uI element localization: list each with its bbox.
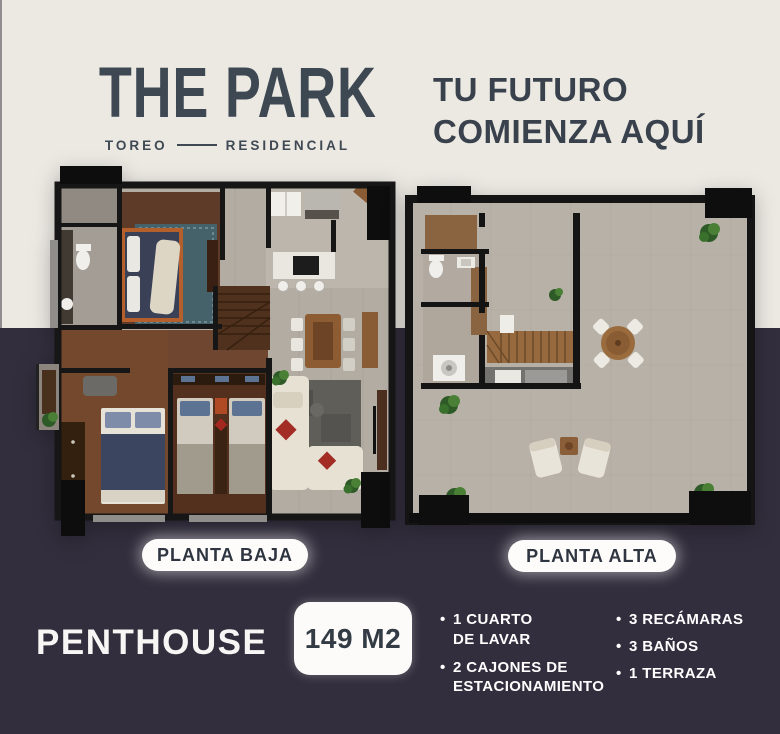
feature-item: • 2 CAJONES DE ESTACIONAMIENTO xyxy=(440,658,620,698)
brand-sub-left: TOREO xyxy=(105,138,168,153)
dresser xyxy=(207,240,218,292)
sink xyxy=(61,298,73,310)
tagline-line2: COMIENZA AQUÍ xyxy=(433,111,705,153)
tagline-line1: TU FUTURO xyxy=(433,69,705,111)
balcony xyxy=(36,364,59,430)
twin-bed-2 xyxy=(229,398,265,494)
nightstand xyxy=(215,398,227,414)
tagline: TU FUTURO COMIENZA AQUÍ xyxy=(433,69,705,153)
kitchen-island xyxy=(273,252,335,279)
twin-bed-1 xyxy=(177,398,213,494)
feature-text: 1 CUARTO DE LAVAR xyxy=(453,610,533,650)
feature-text: 2 CAJONES DE ESTACIONAMIENTO xyxy=(453,658,604,698)
bullet-icon: • xyxy=(440,610,453,650)
closet-wood xyxy=(425,215,477,253)
stairs xyxy=(218,286,270,350)
brand-subtitle: TOREORESIDENCIAL xyxy=(55,138,400,153)
feature-item: • 1 CUARTO DE LAVAR xyxy=(440,610,620,650)
washer xyxy=(433,355,465,381)
feature-text: 3 BAÑOS xyxy=(629,637,698,657)
features-column-1: • 1 CUARTO DE LAVAR • 2 CAJONES DE ESTAC… xyxy=(440,610,620,705)
floorplan-planta-alta xyxy=(405,195,755,525)
stair-landing xyxy=(500,315,514,333)
feature-text: 1 TERRAZA xyxy=(629,664,717,684)
label-planta-baja: PLANTA BAJA xyxy=(142,539,308,571)
feature-item: • 3 RECÁMARAS xyxy=(616,610,776,630)
dash-divider xyxy=(177,144,217,146)
brand-sub-right: RESIDENCIAL xyxy=(226,138,351,153)
bullet-icon: • xyxy=(616,637,629,657)
left-edge-shadow xyxy=(0,0,2,328)
feature-text: 3 RECÁMARAS xyxy=(629,610,743,630)
brand-block: THE PARK xyxy=(55,58,400,129)
bullet-icon: • xyxy=(616,664,629,684)
features-column-2: • 3 RECÁMARAS • 3 BAÑOS • 1 TERRAZA xyxy=(616,610,776,690)
dining-chairs-right xyxy=(343,318,355,371)
armchair xyxy=(83,376,117,396)
label-planta-baja-text: PLANTA BAJA xyxy=(157,545,293,566)
floorplan-planta-baja xyxy=(55,182,395,520)
toilet xyxy=(429,260,443,278)
unit-type-title: PENTHOUSE xyxy=(36,623,267,663)
utility-counter xyxy=(481,367,579,385)
closet-floor xyxy=(58,188,120,224)
feature-item: • 3 BAÑOS xyxy=(616,637,776,657)
dining-chairs-left xyxy=(291,318,303,371)
bed xyxy=(101,408,165,504)
bed xyxy=(121,228,183,322)
feature-item: • 1 TERRAZA xyxy=(616,664,776,684)
bar-stools xyxy=(278,281,325,292)
area-badge: 149 M2 xyxy=(294,602,412,675)
label-planta-alta-text: PLANTA ALTA xyxy=(526,546,658,567)
rug xyxy=(215,422,227,494)
label-planta-alta: PLANTA ALTA xyxy=(508,540,676,572)
bullet-icon: • xyxy=(440,658,453,698)
flyer-canvas: THE PARK TOREORESIDENCIAL TU FUTURO COMI… xyxy=(0,0,780,734)
sideboard xyxy=(362,312,378,368)
bedroom-1 xyxy=(121,224,218,326)
bullet-icon: • xyxy=(616,610,629,630)
brand-title: THE PARK xyxy=(99,58,377,129)
area-badge-text: 149 M2 xyxy=(305,623,401,655)
